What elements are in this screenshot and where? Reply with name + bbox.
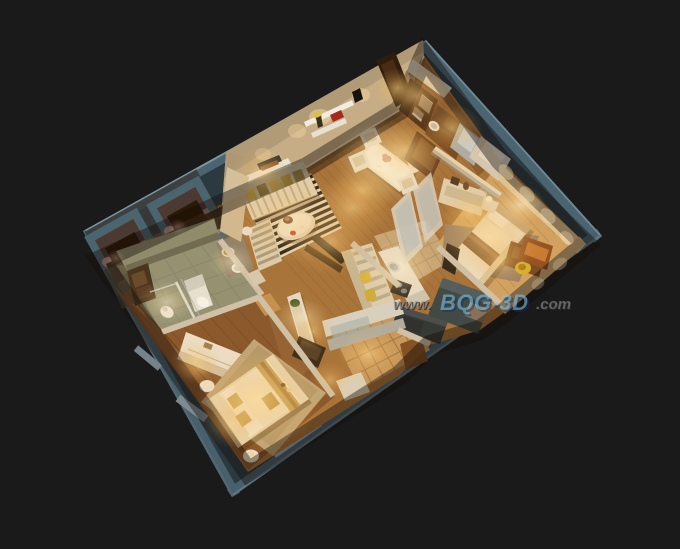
svg-text:www.: www.	[393, 296, 432, 313]
svg-text:.com: .com	[536, 296, 571, 313]
svg-text:BQG-3D: BQG-3D	[440, 290, 529, 315]
